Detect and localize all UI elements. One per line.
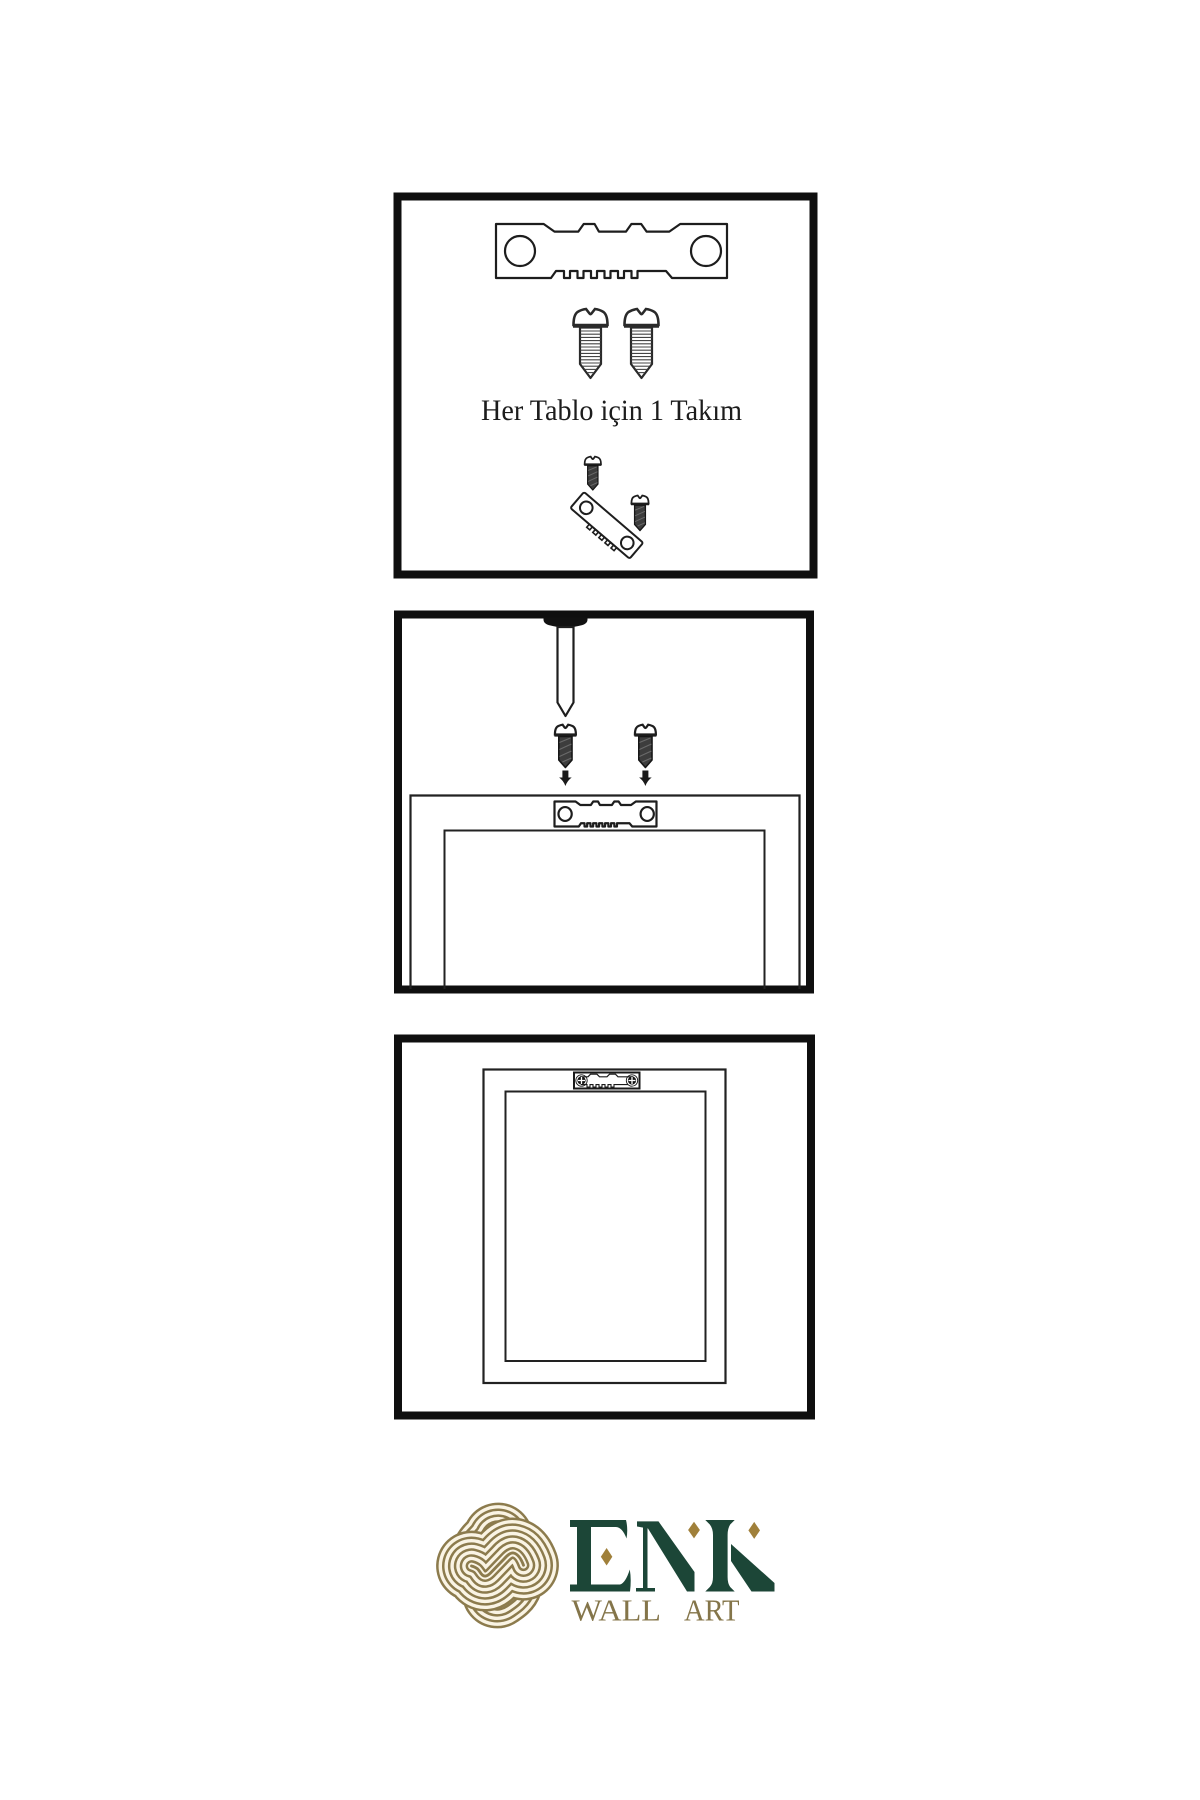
svg-text:ART: ART bbox=[684, 1593, 740, 1628]
svg-text:Her Tablo için 1 Takım: Her Tablo için 1 Takım bbox=[481, 394, 742, 427]
svg-text:WALL: WALL bbox=[572, 1593, 662, 1628]
